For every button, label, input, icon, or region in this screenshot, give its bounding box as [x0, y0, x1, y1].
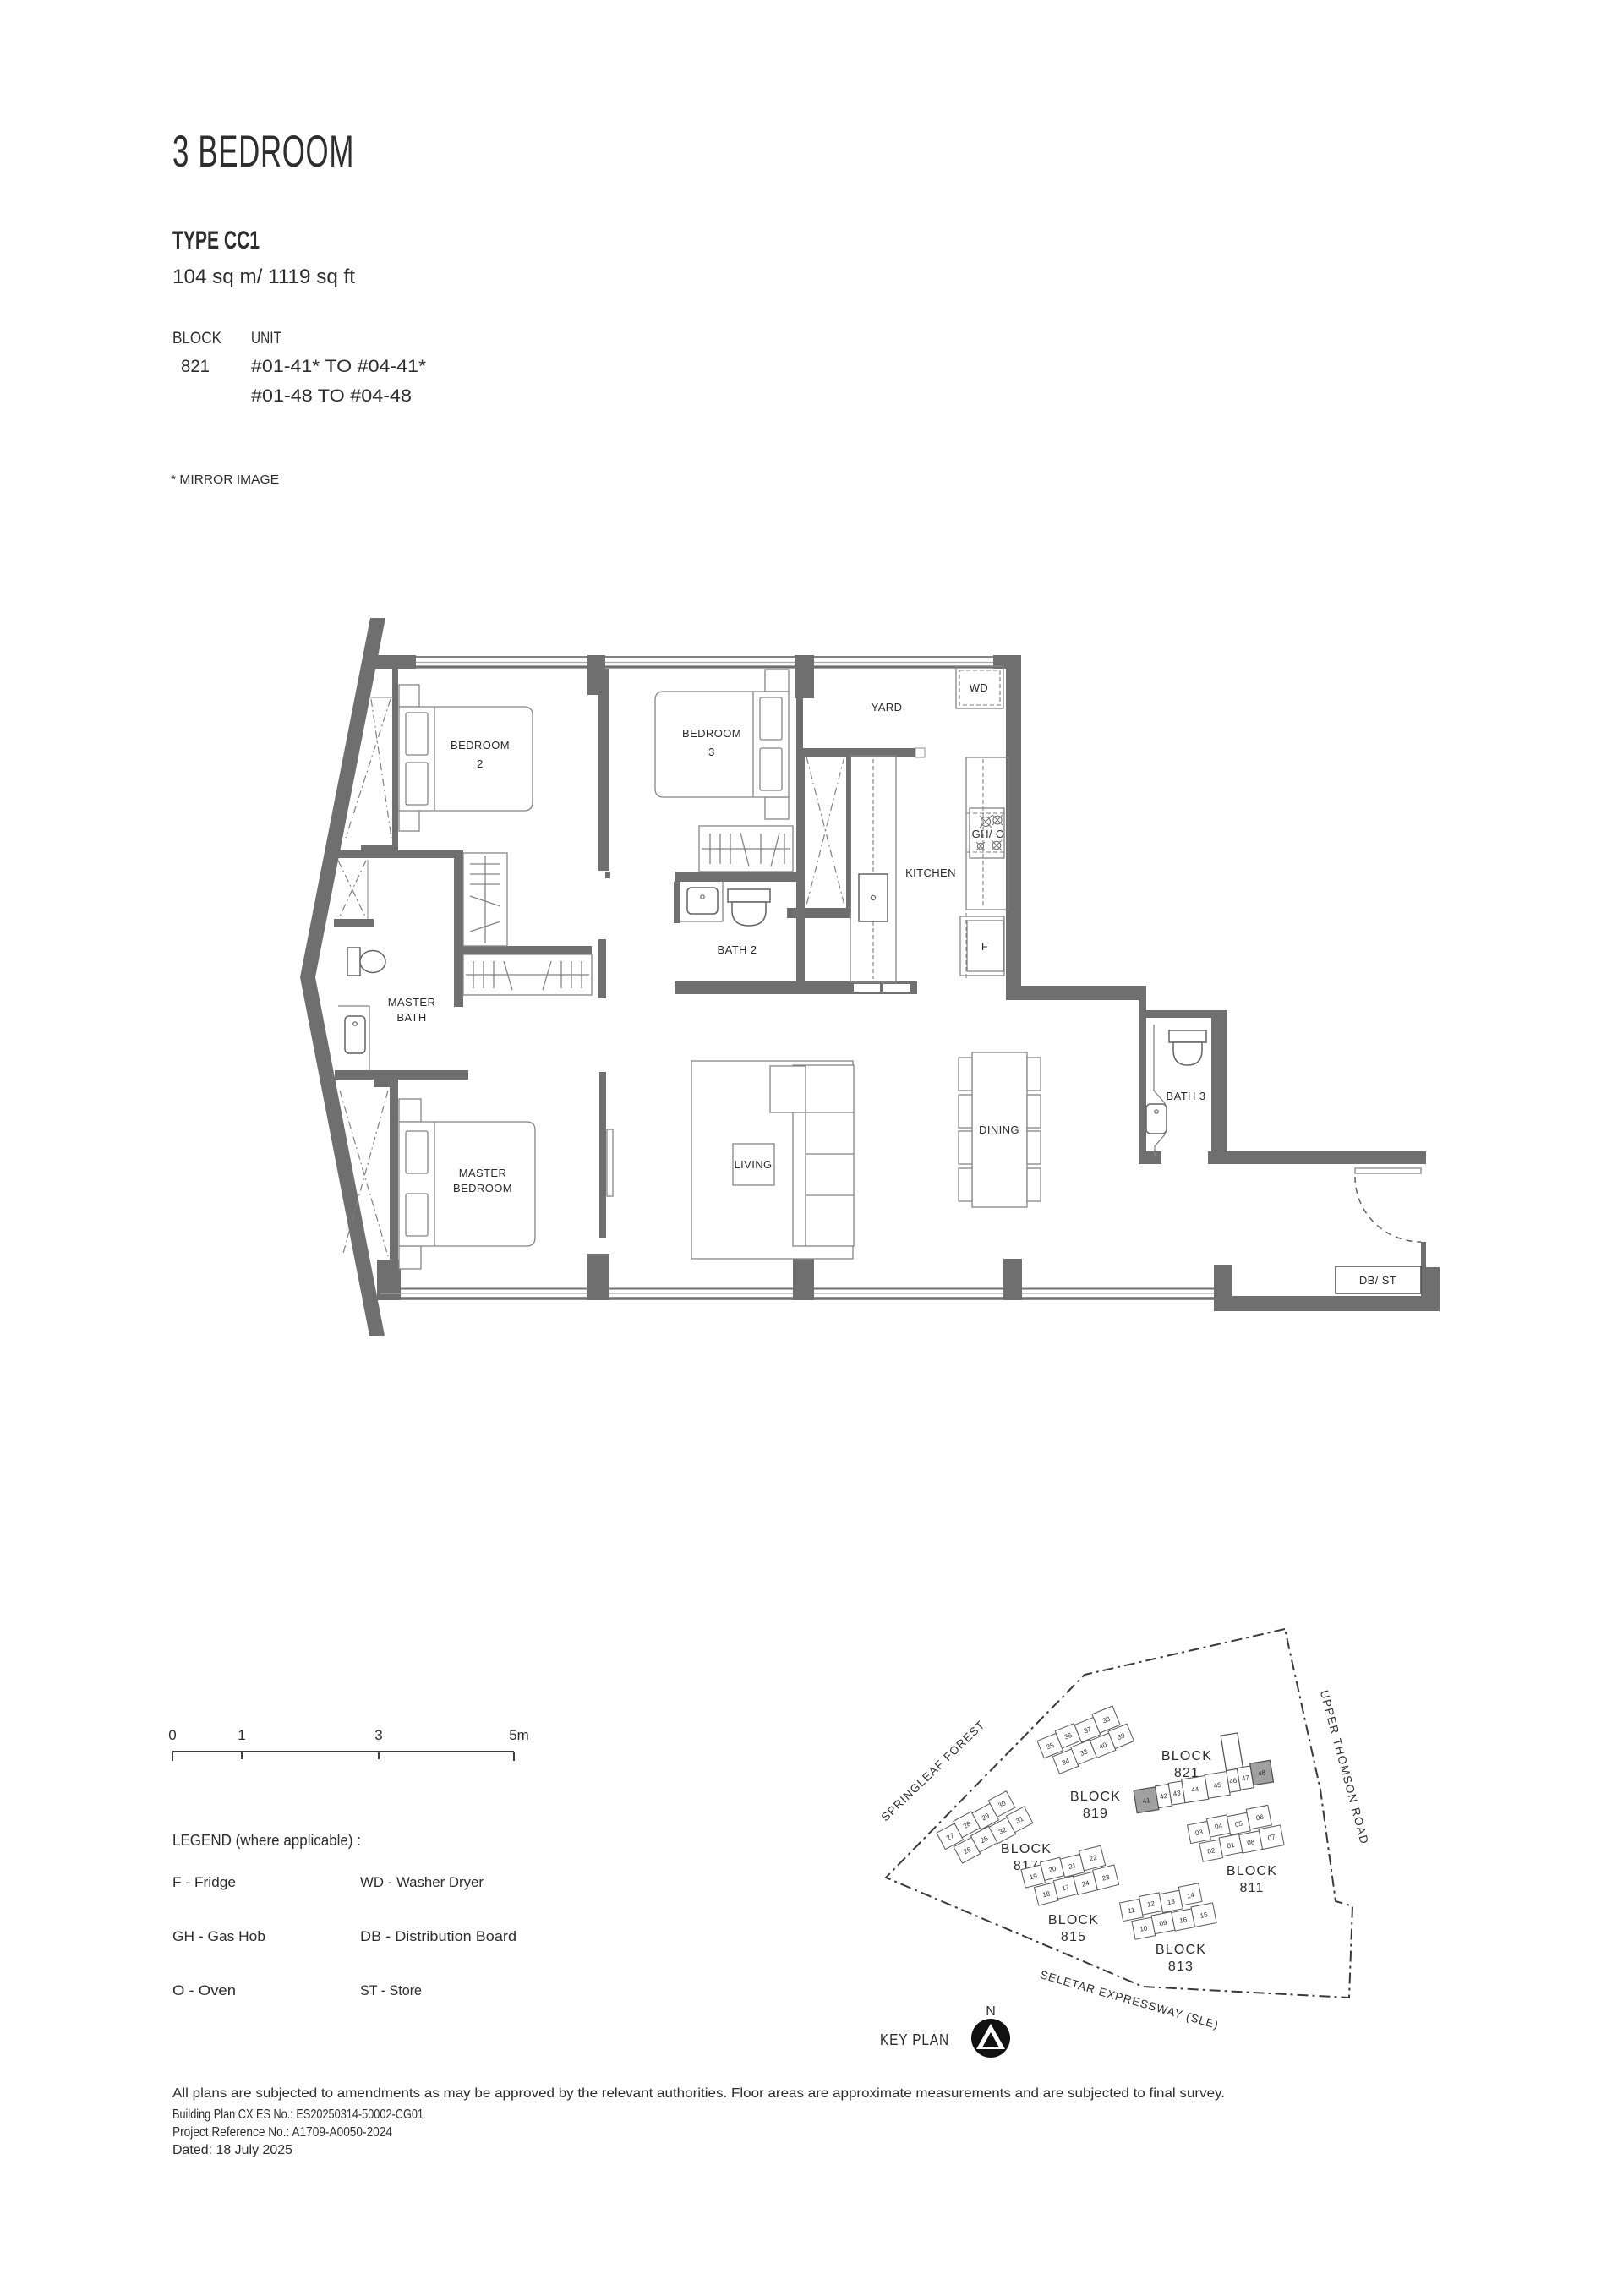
svg-text:O - Oven: O - Oven	[172, 1982, 236, 1998]
svg-text:0: 0	[168, 1727, 176, 1743]
svg-text:DINING: DINING	[979, 1123, 1019, 1136]
svg-text:TYPE CC1: TYPE CC1	[172, 227, 260, 254]
svg-text:813: 813	[1168, 1960, 1194, 1974]
svg-text:ST - Store: ST - Store	[360, 1982, 422, 1998]
svg-text:821: 821	[1174, 1766, 1199, 1780]
svg-text:BLOCK: BLOCK	[1001, 1842, 1052, 1856]
svg-text:GH/ O: GH/ O	[972, 828, 1005, 840]
svg-text:BLOCK: BLOCK	[1070, 1790, 1121, 1804]
svg-text:#01-48 TO #04-48: #01-48 TO #04-48	[251, 386, 412, 406]
svg-text:BLOCK: BLOCK	[1048, 1913, 1099, 1927]
svg-text:104 sq m/ 1119 sq ft: 104 sq m/ 1119 sq ft	[172, 265, 355, 288]
svg-text:3: 3	[708, 746, 715, 758]
svg-text:KEY PLAN: KEY PLAN	[880, 2031, 949, 2048]
svg-text:N: N	[986, 2004, 996, 2019]
svg-text:BLOCK: BLOCK	[1227, 1864, 1277, 1878]
svg-text:UNIT: UNIT	[251, 330, 281, 347]
svg-text:5m: 5m	[509, 1727, 529, 1743]
svg-text:BATH 3: BATH 3	[1167, 1090, 1206, 1102]
svg-text:Project Reference No.: A1709-A: Project Reference No.: A1709-A0050-2024	[172, 2125, 392, 2140]
svg-text:BATH: BATH	[396, 1011, 426, 1024]
svg-text:3: 3	[374, 1727, 382, 1743]
svg-text:3 BEDROOM: 3 BEDROOM	[172, 127, 354, 177]
svg-text:1: 1	[238, 1727, 245, 1743]
svg-text:GH - Gas Hob: GH - Gas Hob	[172, 1928, 265, 1944]
svg-text:WD - Washer Dryer: WD - Washer Dryer	[360, 1874, 484, 1890]
svg-text:815: 815	[1061, 1930, 1086, 1944]
svg-text:LEGEND (where applicable) :: LEGEND (where applicable) :	[172, 1832, 361, 1849]
svg-text:2: 2	[477, 757, 484, 770]
svg-text:#01-41* TO #04-41*: #01-41* TO #04-41*	[251, 357, 426, 376]
svg-text:BATH 2: BATH 2	[718, 943, 757, 956]
svg-text:BEDROOM: BEDROOM	[682, 727, 741, 740]
svg-text:BLOCK: BLOCK	[1161, 1749, 1212, 1763]
svg-text:BEDROOM: BEDROOM	[453, 1182, 512, 1194]
svg-text:DB - Distribution Board: DB - Distribution Board	[360, 1928, 516, 1944]
svg-text:WD: WD	[970, 681, 988, 694]
svg-text:Dated: 18 July 2025: Dated: 18 July 2025	[172, 2143, 292, 2157]
svg-text:YARD: YARD	[872, 701, 903, 713]
svg-text:F: F	[981, 940, 988, 953]
svg-text:BEDROOM: BEDROOM	[451, 739, 510, 752]
svg-text:DB/ ST: DB/ ST	[1359, 1274, 1396, 1287]
svg-text:MASTER: MASTER	[388, 996, 436, 1009]
svg-text:Building Plan CX ES No.: ES202: Building Plan CX ES No.: ES20250314-5000…	[172, 2107, 424, 2122]
svg-text:KITCHEN: KITCHEN	[905, 866, 956, 879]
svg-text:All plans are subjected to ame: All plans are subjected to amendments as…	[172, 2086, 1225, 2101]
svg-text:BLOCK: BLOCK	[172, 330, 221, 347]
svg-text:821: 821	[181, 357, 210, 376]
svg-text:811: 811	[1239, 1881, 1264, 1895]
svg-text:819: 819	[1083, 1807, 1108, 1821]
svg-text:LIVING: LIVING	[734, 1158, 772, 1171]
svg-text:* MIRROR IMAGE: * MIRROR IMAGE	[171, 473, 279, 487]
svg-text:BLOCK: BLOCK	[1156, 1943, 1206, 1957]
svg-text:F - Fridge: F - Fridge	[172, 1874, 236, 1890]
svg-text:MASTER: MASTER	[459, 1167, 507, 1179]
